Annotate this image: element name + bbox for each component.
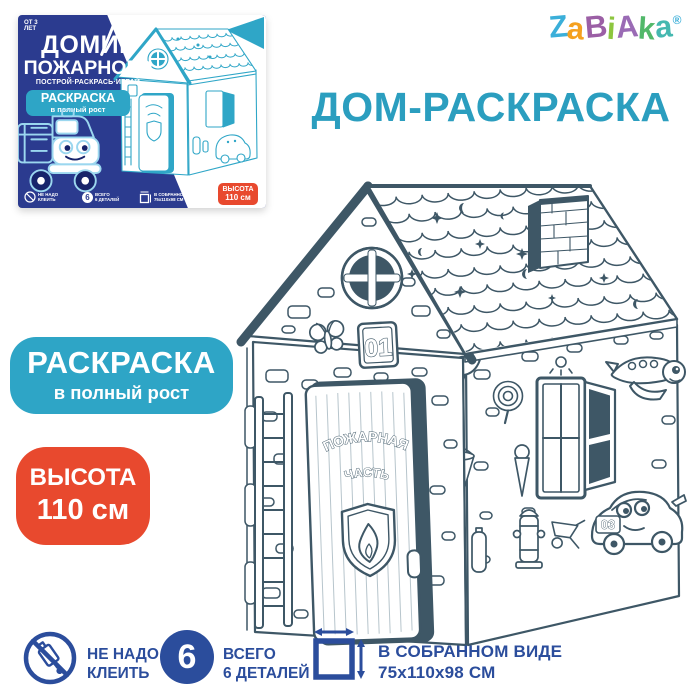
no-glue-icon [22, 630, 78, 686]
feature-dimensions-label: В СОБРАННОМ ВИДЕ 75x110x98 СМ [378, 641, 562, 684]
box-title-line1: ДОМИК [22, 31, 154, 60]
coloring-full-height-badge: РАСКРАСКА в полный рост [10, 337, 233, 414]
fire-truck-illustration [18, 99, 116, 199]
front-door: ПОЖАРНАЯ ЧАСТЬ [305, 378, 434, 646]
house-lineart-illustration: 03 ПОЖАРНАЯ ЧАСТЬ [222, 156, 698, 656]
height-badge: ВЫСОТА 110 см [16, 447, 150, 545]
fire-extinguisher-icon [472, 528, 486, 572]
round-window [342, 248, 402, 308]
car-number: 03 [601, 518, 615, 532]
chimney [528, 196, 588, 273]
box-title-line2: ПОЖАРНОГО [18, 57, 158, 80]
svg-text:01: 01 [364, 333, 393, 362]
feature-parts-label: ВСЕГО 6 ДЕТАЛЕЙ [223, 645, 310, 684]
assembled-dimensions-icon [312, 627, 370, 685]
registered-mark: ® [673, 13, 682, 27]
box-footer-features: НЕ НАДОКЛЕИТЬ 6 ВСЕГО6 ДЕТАЛЕЙ В СОБРАНН… [24, 190, 210, 205]
door-handle [407, 550, 421, 577]
page-title: ДОМ-РАСКРАСКА [285, 84, 697, 131]
age-badge: ОТ 3 ЛЕТ [24, 19, 42, 32]
box-subtitle: ПОСТРОЙ·РАСКРАСЬ·ИГРАЙ [18, 79, 158, 86]
no-glue-icon-small [24, 191, 36, 203]
feature-no-glue-label: НЕ НАДО КЛЕИТЬ [87, 645, 159, 684]
dimensions-icon-small [139, 191, 152, 204]
brand-logo: ZaBiAka® [534, 12, 696, 43]
parts-count-badge-small: 6 [82, 192, 93, 203]
six-parts-badge: 6 [160, 630, 214, 684]
number-plaque: 01 [358, 322, 398, 368]
